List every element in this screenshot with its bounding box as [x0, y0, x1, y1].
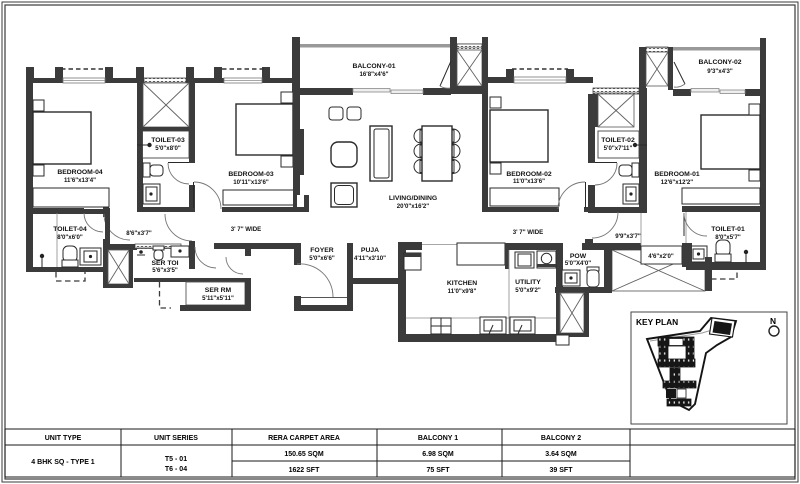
- svg-text:75 SFT: 75 SFT: [427, 467, 451, 474]
- svg-text:5'11"x5'11": 5'11"x5'11": [202, 295, 234, 302]
- svg-text:SER TOI: SER TOI: [151, 260, 178, 267]
- svg-text:UNIT SERIES: UNIT SERIES: [154, 435, 198, 442]
- svg-text:11'6"x13'4": 11'6"x13'4": [64, 177, 96, 184]
- svg-text:39 SFT: 39 SFT: [550, 467, 574, 474]
- svg-text:N: N: [770, 316, 776, 326]
- svg-text:9'9"x3'7": 9'9"x3'7": [615, 233, 641, 240]
- svg-text:5'0"x8'0": 5'0"x8'0": [155, 145, 181, 152]
- svg-text:3' 7" WIDE: 3' 7" WIDE: [513, 229, 543, 236]
- svg-text:T6 - 04: T6 - 04: [165, 466, 187, 473]
- svg-text:POW: POW: [570, 253, 587, 260]
- svg-text:5'6"x3'5": 5'6"x3'5": [152, 267, 178, 274]
- svg-text:11'0"x9'8": 11'0"x9'8": [448, 288, 477, 295]
- svg-text:20'0"x16'2": 20'0"x16'2": [397, 203, 430, 210]
- svg-text:BALCONY-02: BALCONY-02: [698, 59, 741, 66]
- svg-text:5'0"x9'2": 5'0"x9'2": [515, 287, 541, 294]
- svg-text:8'6"x3'7": 8'6"x3'7": [126, 230, 152, 237]
- svg-text:BALCONY 1: BALCONY 1: [418, 435, 458, 442]
- svg-text:FOYER: FOYER: [310, 247, 334, 254]
- svg-text:5'0"X4'0": 5'0"X4'0": [565, 260, 591, 267]
- svg-text:BALCONY 2: BALCONY 2: [541, 435, 581, 442]
- svg-text:9'3"x4'3": 9'3"x4'3": [707, 68, 733, 75]
- svg-text:UTILITY: UTILITY: [515, 279, 541, 286]
- svg-text:T5 - 01: T5 - 01: [165, 456, 187, 463]
- svg-text:150.65 SQM: 150.65 SQM: [284, 451, 323, 458]
- svg-text:UNIT TYPE: UNIT TYPE: [45, 435, 82, 442]
- svg-text:5'0"x7'11": 5'0"x7'11": [604, 145, 633, 152]
- svg-text:BEDROOM-04: BEDROOM-04: [57, 169, 103, 176]
- svg-text:BALCONY-01: BALCONY-01: [352, 63, 395, 70]
- svg-text:TOILET-04: TOILET-04: [53, 226, 87, 233]
- svg-text:PUJA: PUJA: [361, 247, 379, 254]
- svg-text:TOILET-01: TOILET-01: [711, 226, 745, 233]
- svg-text:SER RM: SER RM: [205, 287, 232, 294]
- svg-text:12'6"x12'2": 12'6"x12'2": [661, 179, 694, 186]
- svg-text:3' 7" WIDE: 3' 7" WIDE: [231, 226, 261, 233]
- svg-text:5'0"x6'6": 5'0"x6'6": [309, 255, 335, 262]
- svg-text:TOILET-02: TOILET-02: [601, 137, 635, 144]
- svg-text:1622 SFT: 1622 SFT: [289, 467, 320, 474]
- svg-text:KITCHEN: KITCHEN: [447, 280, 477, 287]
- svg-text:3.64 SQM: 3.64 SQM: [545, 451, 577, 458]
- svg-text:TOILET-03: TOILET-03: [151, 137, 185, 144]
- svg-text:6.98 SQM: 6.98 SQM: [422, 451, 454, 458]
- svg-text:RERA CARPET AREA: RERA CARPET AREA: [268, 435, 340, 442]
- svg-text:4'11"x3'10": 4'11"x3'10": [354, 255, 386, 262]
- svg-text:BEDROOM-03: BEDROOM-03: [228, 171, 274, 178]
- svg-text:BEDROOM-01: BEDROOM-01: [654, 171, 700, 178]
- svg-text:4 BHK SQ - TYPE 1: 4 BHK SQ - TYPE 1: [31, 459, 95, 466]
- svg-text:LIVING/DINING: LIVING/DINING: [389, 195, 437, 202]
- svg-text:10'11"x13'6": 10'11"x13'6": [233, 179, 269, 186]
- svg-text:11'0"x13'6": 11'0"x13'6": [513, 178, 545, 185]
- svg-text:BEDROOM-02: BEDROOM-02: [506, 171, 552, 178]
- svg-text:16'8"x4'6": 16'8"x4'6": [359, 71, 388, 78]
- svg-text:KEY PLAN: KEY PLAN: [636, 317, 678, 327]
- svg-text:4'6"x2'0": 4'6"x2'0": [648, 253, 674, 260]
- svg-text:8'0"x6'0": 8'0"x6'0": [57, 234, 83, 241]
